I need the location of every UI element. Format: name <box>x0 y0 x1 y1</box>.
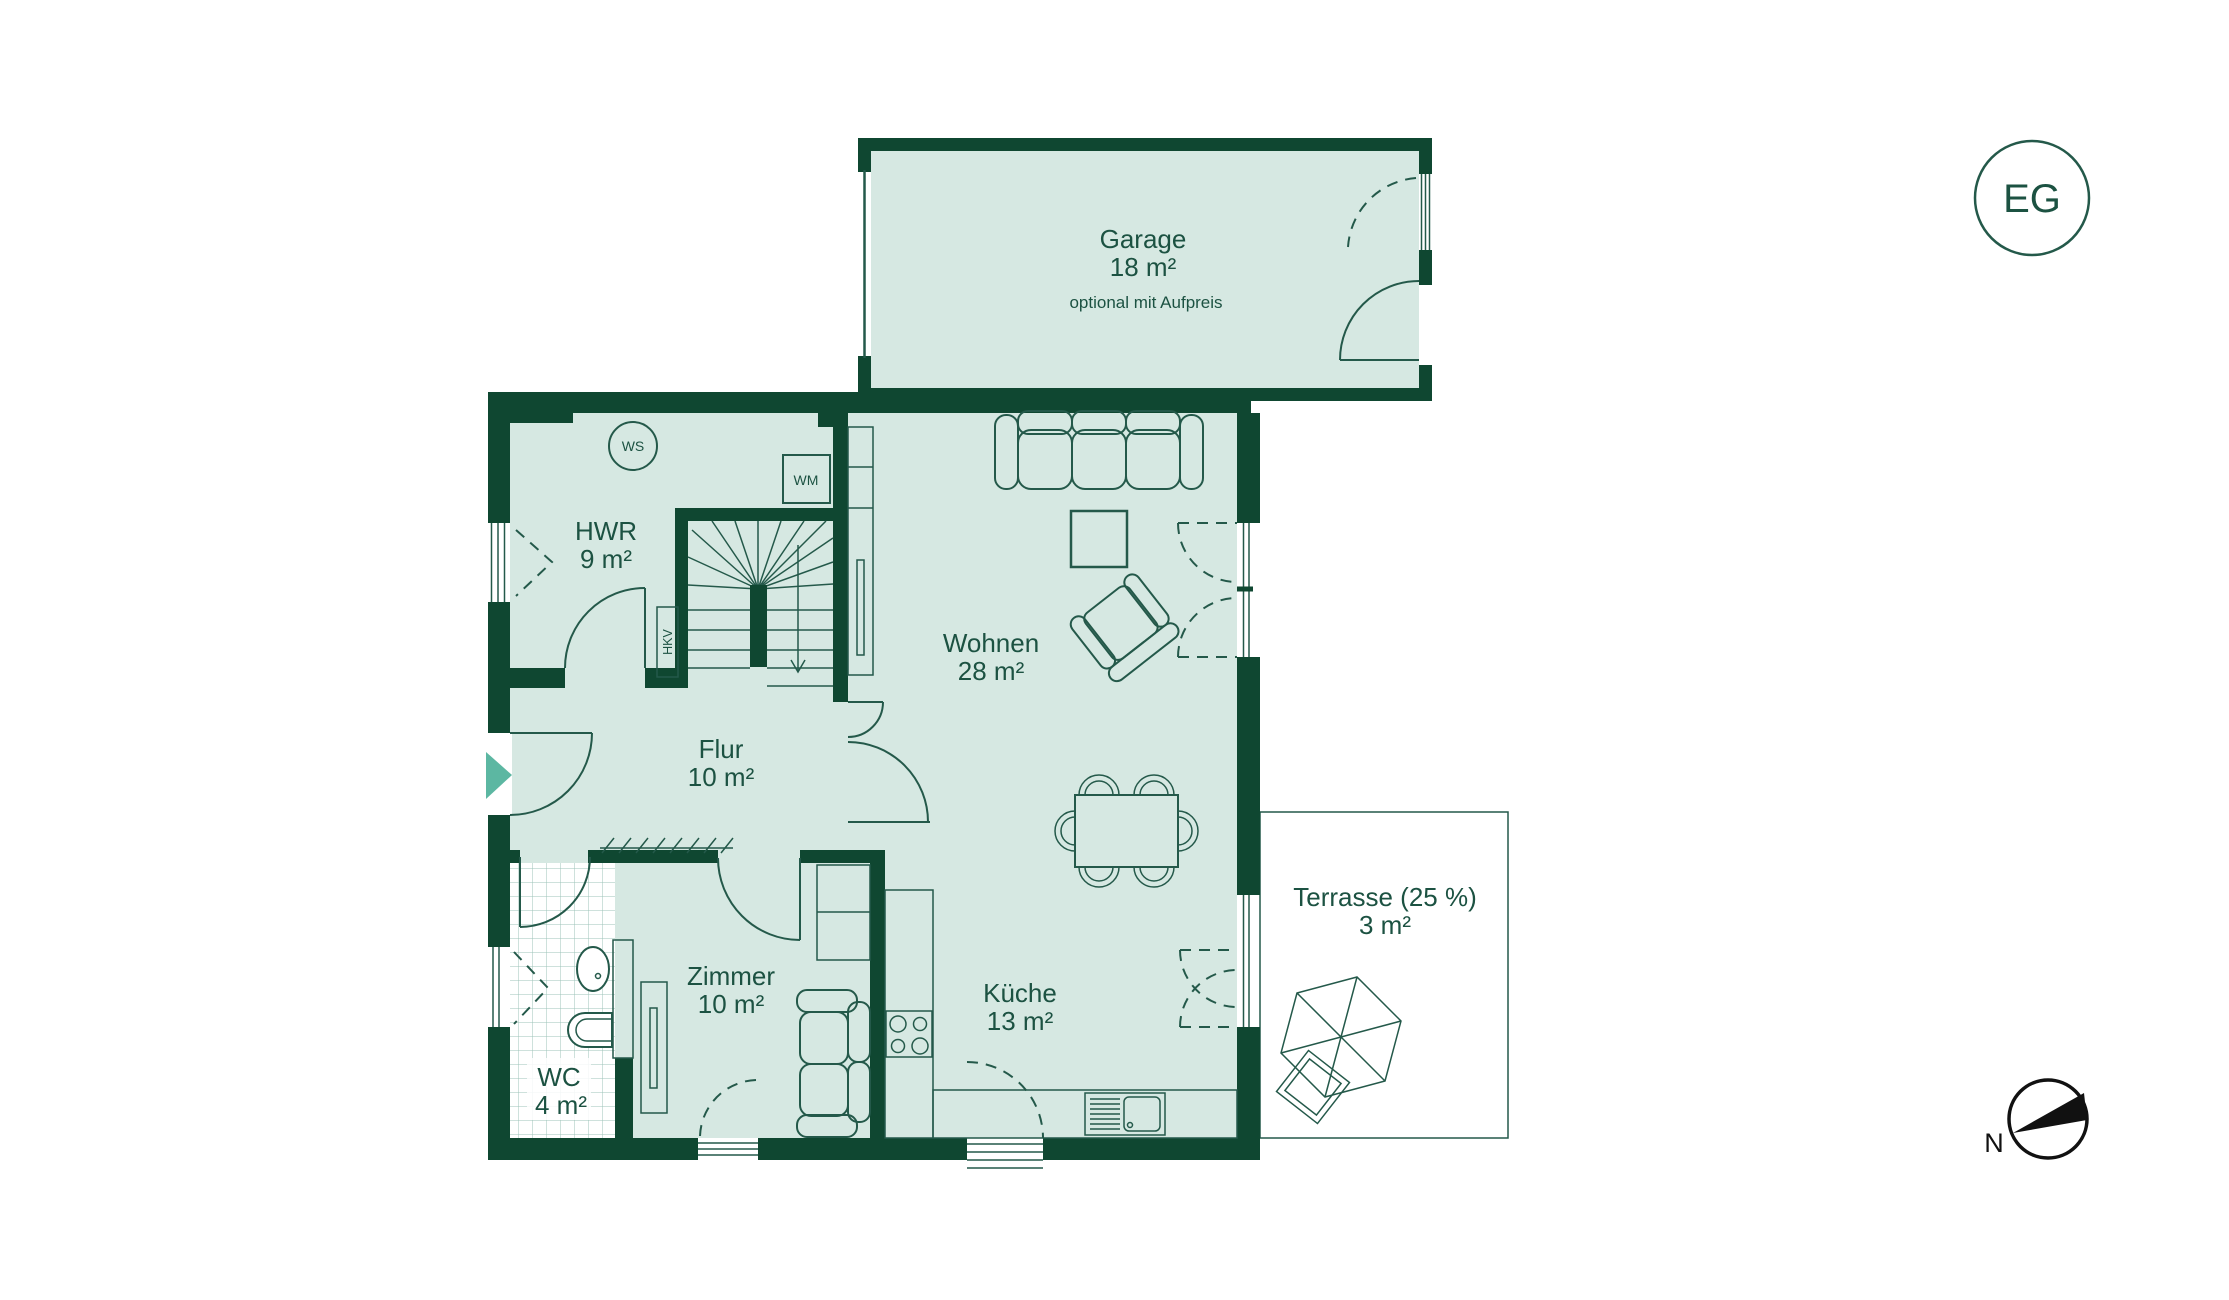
floor-badge-label: EG <box>2003 177 2061 221</box>
wohnen-name: Wohnen <box>943 628 1039 658</box>
north-label: N <box>1984 1128 2004 1158</box>
hwr-area: 9 m² <box>580 544 632 574</box>
wc-area: 4 m² <box>535 1090 587 1120</box>
hwr-name: HWR <box>575 516 637 546</box>
zimmer-name: Zimmer <box>687 961 775 991</box>
terrasse-name: Terrasse (25 %) <box>1293 882 1477 912</box>
wm-label: WM <box>794 472 819 488</box>
garage-name: Garage <box>1100 224 1187 254</box>
north-compass: N <box>1984 1080 2087 1158</box>
zimmer-area: 10 m² <box>698 989 765 1019</box>
terrace-floor <box>1260 812 1508 1138</box>
floorplan-page: WS WM HKV <box>0 0 2229 1300</box>
ws-label: WS <box>622 438 645 454</box>
garage-note: optional mit Aufpreis <box>1069 293 1222 312</box>
kueche-area: 13 m² <box>987 1006 1054 1036</box>
kueche-name: Küche <box>983 978 1057 1008</box>
garage-area: 18 m² <box>1110 252 1177 282</box>
wc-name: WC <box>537 1062 580 1092</box>
wc-toilet <box>568 1013 612 1047</box>
wc-sink <box>577 947 609 991</box>
floorplan-drawing: WS WM HKV <box>0 0 2229 1300</box>
flur-name: Flur <box>699 734 744 764</box>
flur-area: 10 m² <box>688 762 755 792</box>
north-arrow <box>2013 1093 2087 1133</box>
parasol <box>1277 977 1401 1123</box>
terrasse-area: 3 m² <box>1359 910 1411 940</box>
wohnen-area: 28 m² <box>958 656 1025 686</box>
hkv-label: HKV <box>661 628 675 654</box>
stair-newel <box>750 585 767 667</box>
parasol-table <box>1277 1051 1350 1124</box>
floor-badge: EG <box>1975 141 2089 255</box>
